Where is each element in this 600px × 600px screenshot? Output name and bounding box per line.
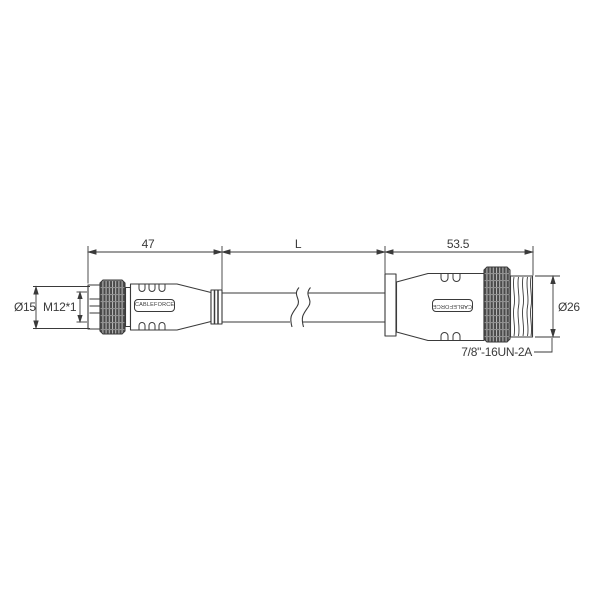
cable bbox=[222, 288, 385, 328]
right-knurl-ring bbox=[484, 267, 510, 342]
arrowhead-icon bbox=[223, 250, 231, 254]
dim-label-dia26: Ø26 bbox=[558, 300, 580, 314]
arrowhead-icon bbox=[78, 292, 82, 298]
arrowhead-icon bbox=[214, 250, 222, 254]
thread-label-leader bbox=[534, 338, 552, 352]
dim-label-m12-thread: M12*1 bbox=[43, 300, 76, 314]
arrowhead-icon bbox=[551, 330, 555, 337]
left-neck bbox=[126, 288, 131, 327]
arrowhead-icon bbox=[386, 250, 394, 254]
dim-label-dia15: Ø15 bbox=[14, 300, 36, 314]
arrowhead-icon bbox=[89, 250, 97, 254]
arrowhead-icon bbox=[34, 287, 38, 294]
dim-label-53-5: 53.5 bbox=[447, 237, 469, 251]
right-cable-collar bbox=[385, 274, 396, 336]
m12-thread-stub bbox=[88, 285, 101, 329]
dim-label-cable-length: L bbox=[295, 237, 301, 251]
brand-plate-right: CABLEFORCE bbox=[432, 299, 473, 312]
dim-label-78-thread: 7/8"-16UN-2A bbox=[461, 345, 532, 359]
arrowhead-icon bbox=[525, 250, 533, 254]
left-cable-collar bbox=[211, 290, 222, 324]
arrowhead-icon bbox=[377, 250, 385, 254]
dim-label-47: 47 bbox=[142, 237, 155, 251]
left-knurl-ring bbox=[100, 280, 125, 334]
technical-drawing-canvas: 47 L 53.5 Ø15 M12*1 Ø26 7/8"-16UN-2A CAB… bbox=[0, 0, 600, 600]
arrowhead-icon bbox=[34, 321, 38, 328]
arrowhead-icon bbox=[78, 316, 82, 322]
arrowhead-icon bbox=[551, 277, 555, 284]
cable-assembly-drawing bbox=[0, 0, 600, 600]
brand-plate-left: CABLEFORCE bbox=[134, 299, 175, 312]
